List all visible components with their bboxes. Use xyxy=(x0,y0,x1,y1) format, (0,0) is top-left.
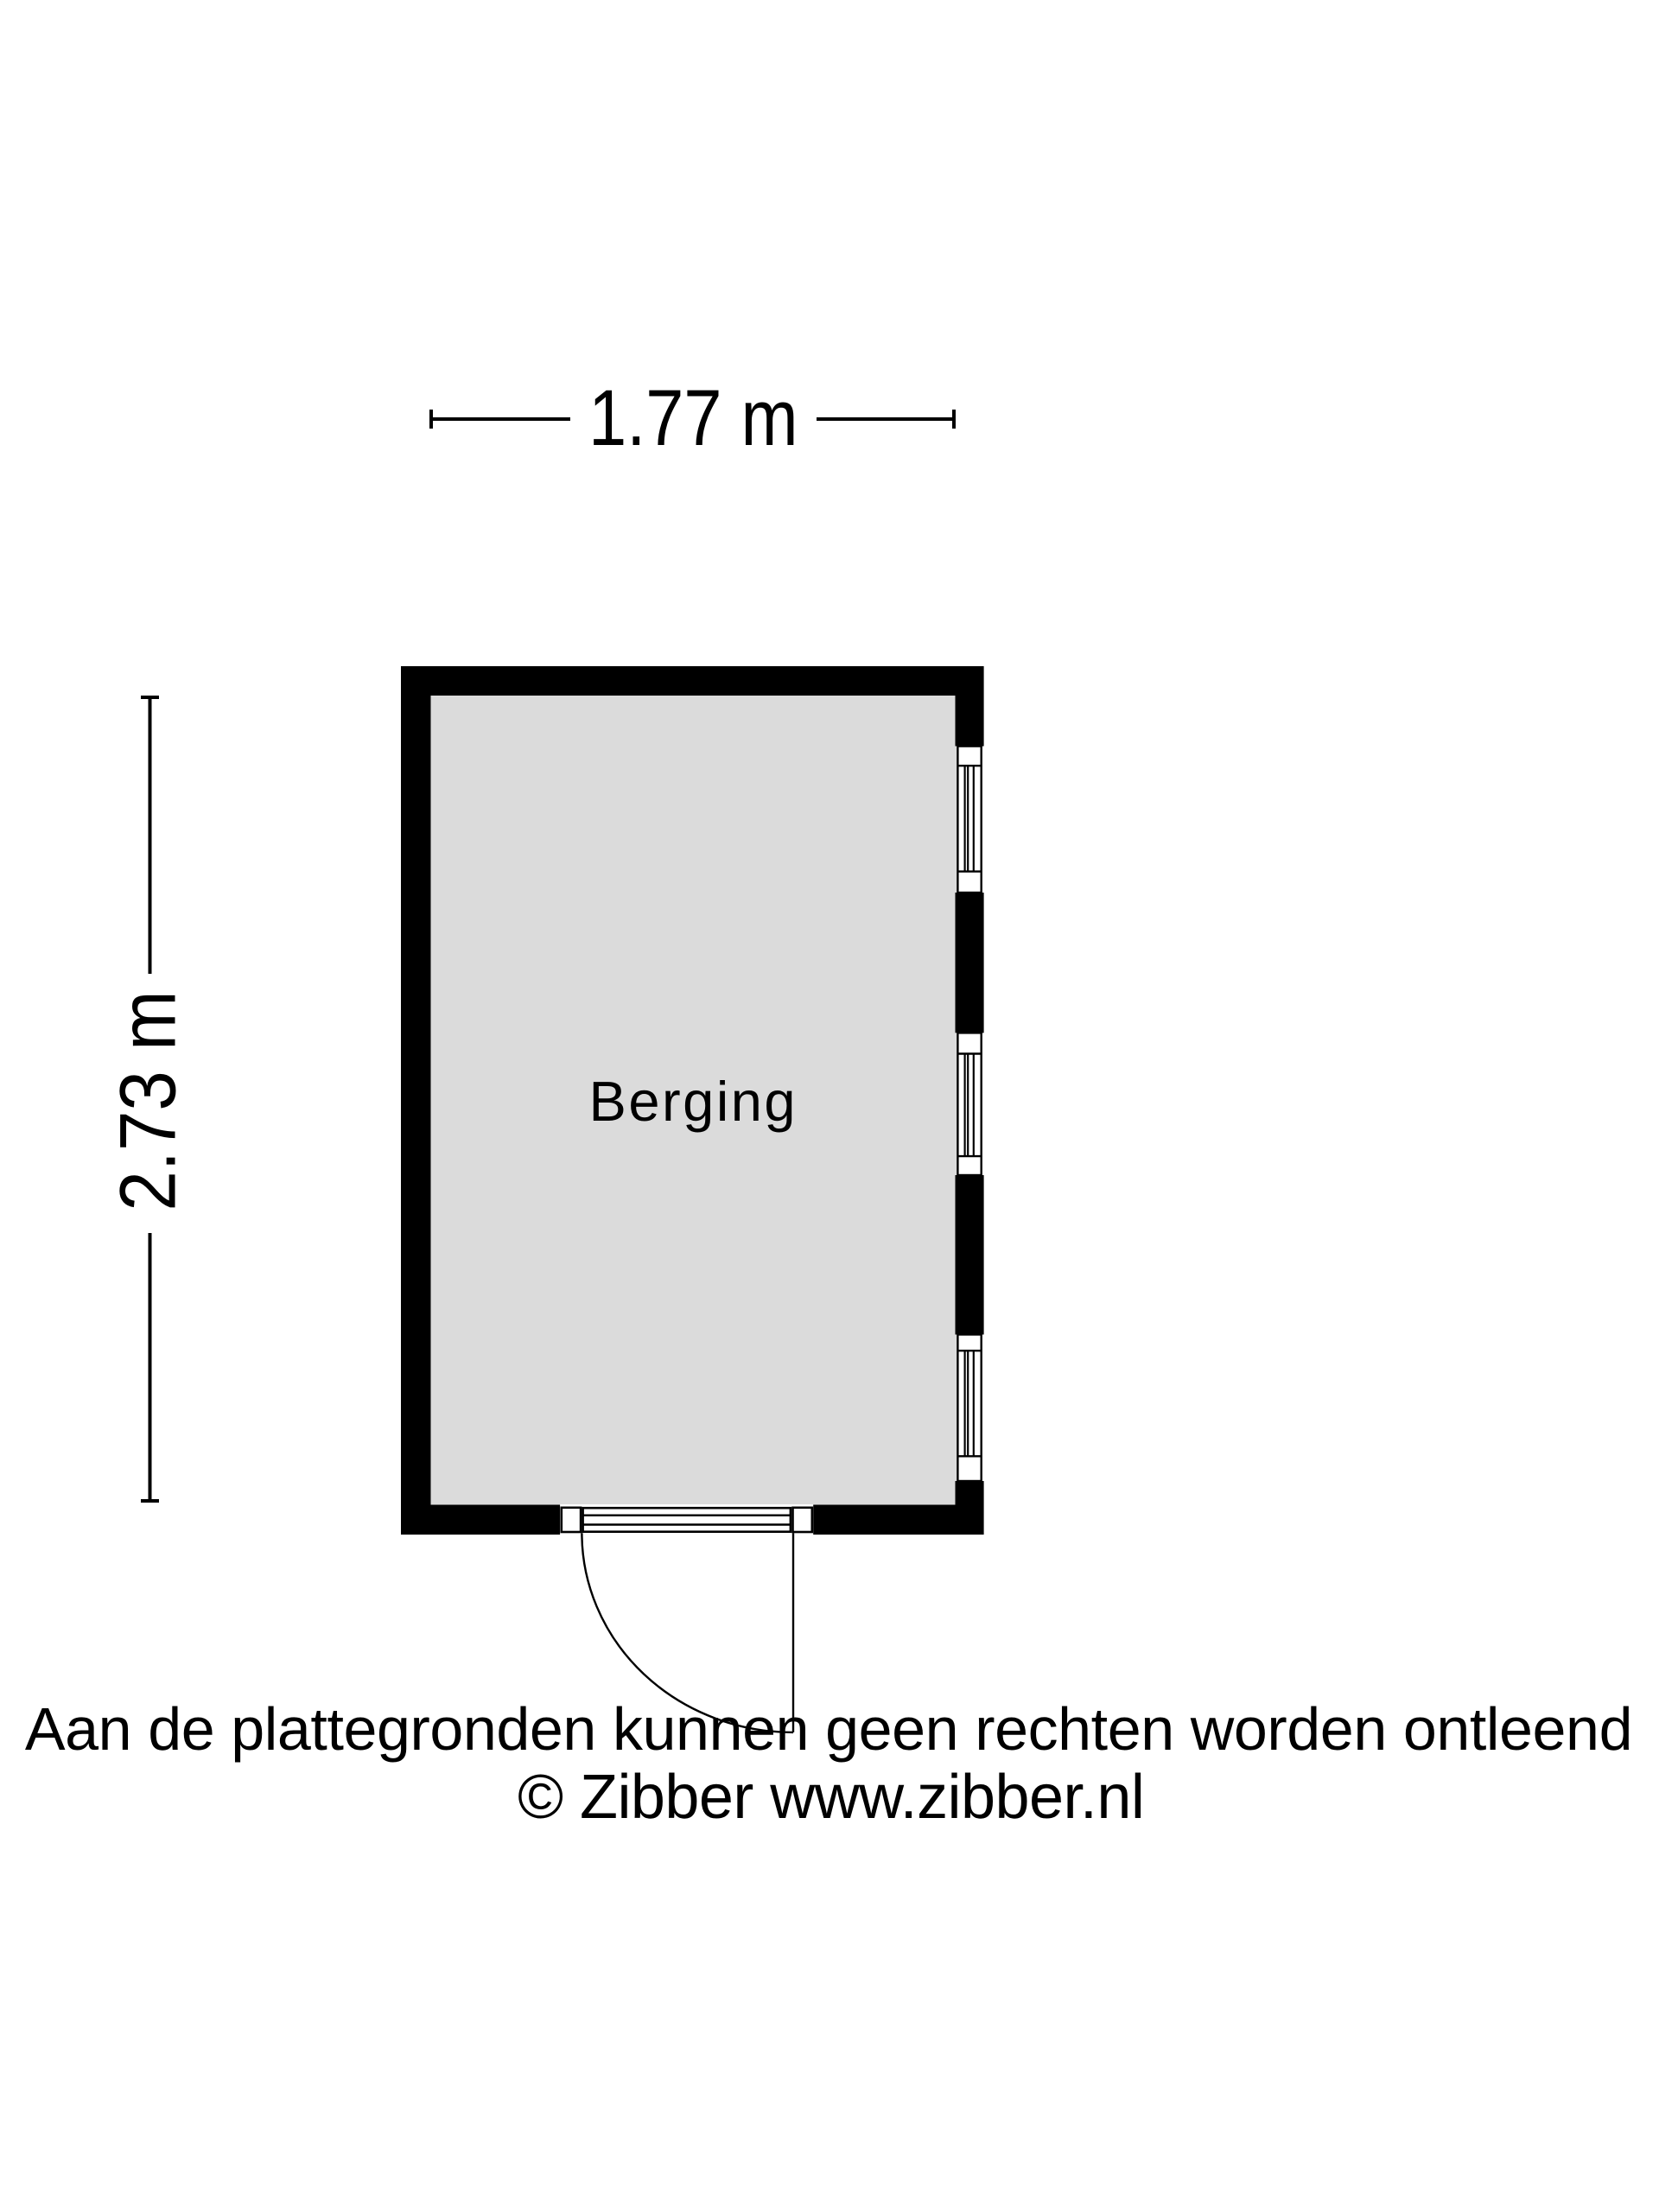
svg-text:Berging: Berging xyxy=(589,1070,798,1133)
svg-text:1.77 m: 1.77 m xyxy=(588,374,798,462)
svg-text:2.73 m: 2.73 m xyxy=(105,990,193,1211)
svg-text:© Zibber www.zibber.nl: © Zibber www.zibber.nl xyxy=(518,1763,1144,1832)
svg-text:Aan de plattegronden kunnen ge: Aan de plattegronden kunnen geen rechten… xyxy=(25,1695,1632,1763)
